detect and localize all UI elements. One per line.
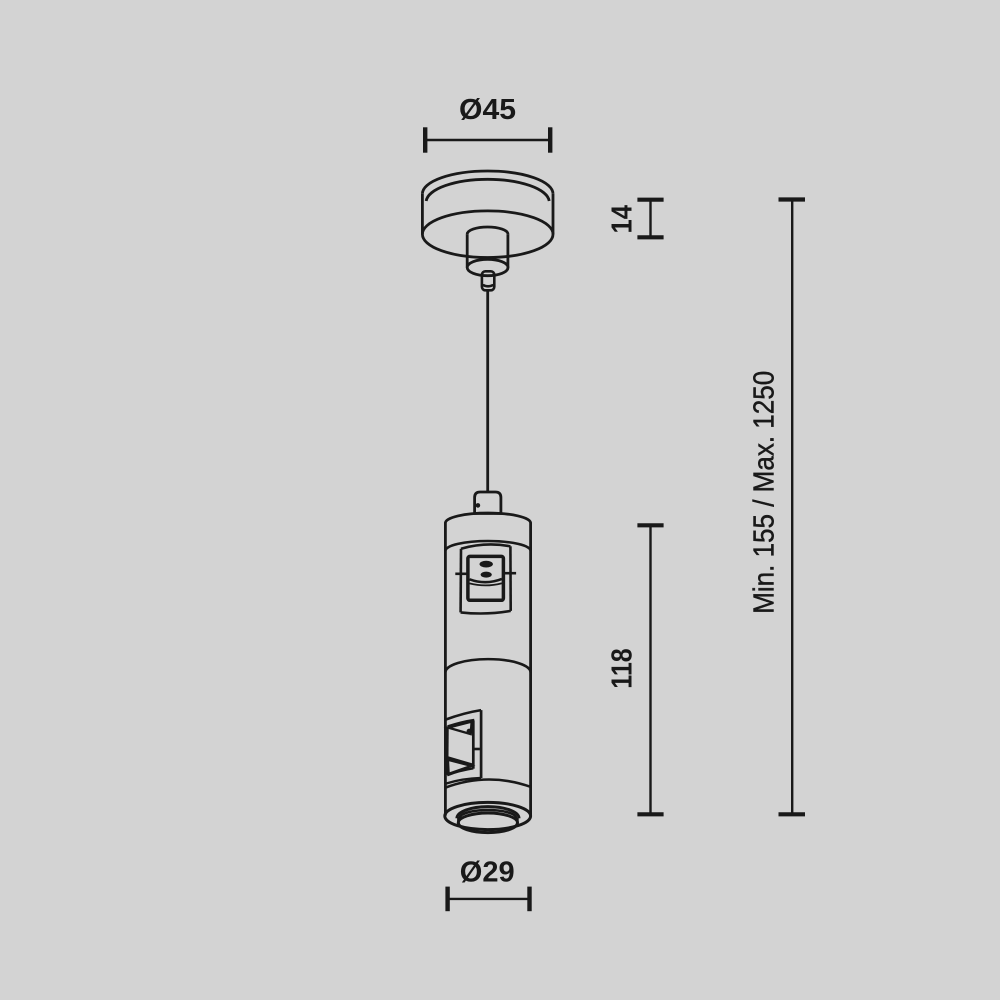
svg-text:Min. 155 / Max. 1250: Min. 155 / Max. 1250 [749,371,781,614]
svg-text:Ø45: Ø45 [459,94,516,126]
svg-text:118: 118 [607,648,639,689]
svg-text:14: 14 [606,205,638,234]
svg-text:Ø29: Ø29 [460,857,515,889]
